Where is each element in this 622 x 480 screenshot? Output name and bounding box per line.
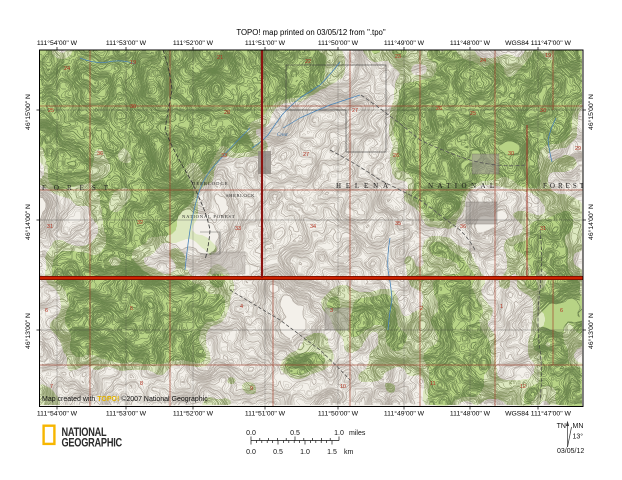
svg-text:25: 25 [48, 108, 54, 114]
svg-text:30: 30 [508, 151, 514, 157]
svg-text:46°15'00" N: 46°15'00" N [587, 94, 595, 130]
svg-text:WGS84 111°47'00" W: WGS84 111°47'00" W [505, 39, 571, 47]
svg-text:0.5: 0.5 [273, 449, 283, 456]
svg-text:31: 31 [540, 226, 546, 232]
svg-text:NATIONAL FOREST: NATIONAL FOREST [182, 214, 235, 219]
svg-text:0.0: 0.0 [246, 430, 256, 437]
svg-text:8: 8 [140, 381, 143, 387]
svg-text:28: 28 [224, 110, 230, 116]
svg-text:2: 2 [420, 306, 423, 312]
svg-text:32: 32 [137, 220, 143, 226]
svg-text:111°52'00" W: 111°52'00" W [173, 410, 214, 418]
svg-text:GEOGRAPHIC: GEOGRAPHIC [62, 438, 123, 450]
svg-text:7: 7 [50, 384, 53, 390]
svg-text:111°50'00" W: 111°50'00" W [318, 39, 359, 47]
svg-text:FOREST: FOREST [42, 184, 116, 192]
svg-text:1.0: 1.0 [300, 449, 310, 456]
svg-text:111°50'00" W: 111°50'00" W [318, 410, 359, 418]
svg-text:6: 6 [45, 308, 48, 314]
svg-text:Map created with TOPO! ©2007 N: Map created with TOPO! ©2007 National Ge… [42, 395, 208, 403]
svg-text:34: 34 [310, 224, 316, 230]
svg-text:21: 21 [217, 55, 223, 61]
svg-text:27: 27 [303, 152, 309, 158]
svg-text:3: 3 [330, 308, 333, 314]
svg-text:NATIONAL: NATIONAL [428, 182, 499, 190]
svg-text:19: 19 [130, 60, 136, 66]
svg-text:miles: miles [349, 430, 366, 437]
svg-text:30: 30 [130, 104, 136, 110]
svg-text:46°14'00" N: 46°14'00" N [24, 204, 32, 240]
svg-text:0.5: 0.5 [290, 430, 300, 437]
svg-text:03/05/12: 03/05/12 [557, 448, 584, 455]
svg-text:33: 33 [221, 153, 227, 159]
svg-text:24: 24 [64, 66, 70, 72]
svg-text:11: 11 [430, 381, 436, 387]
svg-text:MN: MN [573, 423, 584, 430]
svg-text:1.0: 1.0 [334, 430, 344, 437]
svg-text:36: 36 [97, 151, 103, 157]
svg-text:111°48'00" W: 111°48'00" W [450, 39, 491, 47]
svg-text:4: 4 [240, 304, 243, 310]
svg-text:1.5: 1.5 [327, 449, 337, 456]
svg-text:29: 29 [575, 146, 581, 152]
svg-text:46°13'00" N: 46°13'00" N [587, 313, 595, 349]
svg-text:26: 26 [393, 153, 399, 159]
svg-text:12: 12 [520, 384, 526, 390]
svg-text:WGS84 111°47'00" W: WGS84 111°47'00" W [505, 410, 571, 418]
svg-text:46°13'00" N: 46°13'00" N [24, 313, 32, 349]
svg-text:HELENA: HELENA [336, 182, 393, 190]
svg-text:111°48'00" W: 111°48'00" W [450, 410, 491, 418]
svg-text:13°: 13° [573, 433, 584, 441]
svg-text:33: 33 [235, 226, 241, 232]
svg-text:DEERLODGE: DEERLODGE [192, 181, 229, 186]
svg-text:111°49'00" W: 111°49'00" W [384, 410, 425, 418]
svg-text:TOPO! map printed on 03/05/12: TOPO! map printed on 03/05/12 from ".tpo… [236, 28, 386, 37]
svg-text:111°53'00" W: 111°53'00" W [106, 410, 147, 418]
svg-text:24: 24 [480, 58, 486, 64]
svg-text:km: km [344, 449, 354, 456]
svg-text:FOREST: FOREST [543, 182, 587, 190]
svg-text:Crest: Crest [277, 133, 288, 138]
svg-text:1: 1 [500, 304, 503, 310]
svg-text:111°54'00" W: 111°54'00" W [37, 39, 78, 47]
svg-text:30: 30 [540, 108, 546, 114]
svg-text:27: 27 [352, 108, 358, 114]
svg-text:TN: TN [557, 423, 566, 430]
svg-text:22: 22 [305, 59, 311, 65]
svg-text:111°49'00" W: 111°49'00" W [384, 39, 425, 47]
svg-text:23: 23 [395, 54, 401, 60]
svg-text:46°14'00" N: 46°14'00" N [587, 204, 595, 240]
svg-text:6: 6 [560, 308, 563, 314]
svg-text:25: 25 [470, 111, 476, 117]
svg-text:SHERLOCK: SHERLOCK [226, 193, 255, 198]
svg-text:26: 26 [436, 106, 442, 112]
svg-text:111°54'00" W: 111°54'00" W [37, 410, 78, 418]
svg-text:19: 19 [545, 53, 551, 59]
svg-text:111°51'00" W: 111°51'00" W [245, 39, 286, 47]
svg-text:9: 9 [250, 386, 253, 392]
svg-text:5: 5 [130, 306, 133, 312]
svg-text:36: 36 [460, 224, 466, 230]
svg-text:111°52'00" W: 111°52'00" W [173, 39, 214, 47]
svg-text:0.0: 0.0 [246, 449, 256, 456]
svg-text:10: 10 [340, 384, 346, 390]
svg-text:111°53'00" W: 111°53'00" W [106, 39, 147, 47]
svg-text:111°51'00" W: 111°51'00" W [245, 410, 286, 418]
svg-text:31: 31 [47, 224, 53, 230]
svg-text:35: 35 [395, 221, 401, 227]
svg-text:46°15'00" N: 46°15'00" N [24, 94, 32, 130]
